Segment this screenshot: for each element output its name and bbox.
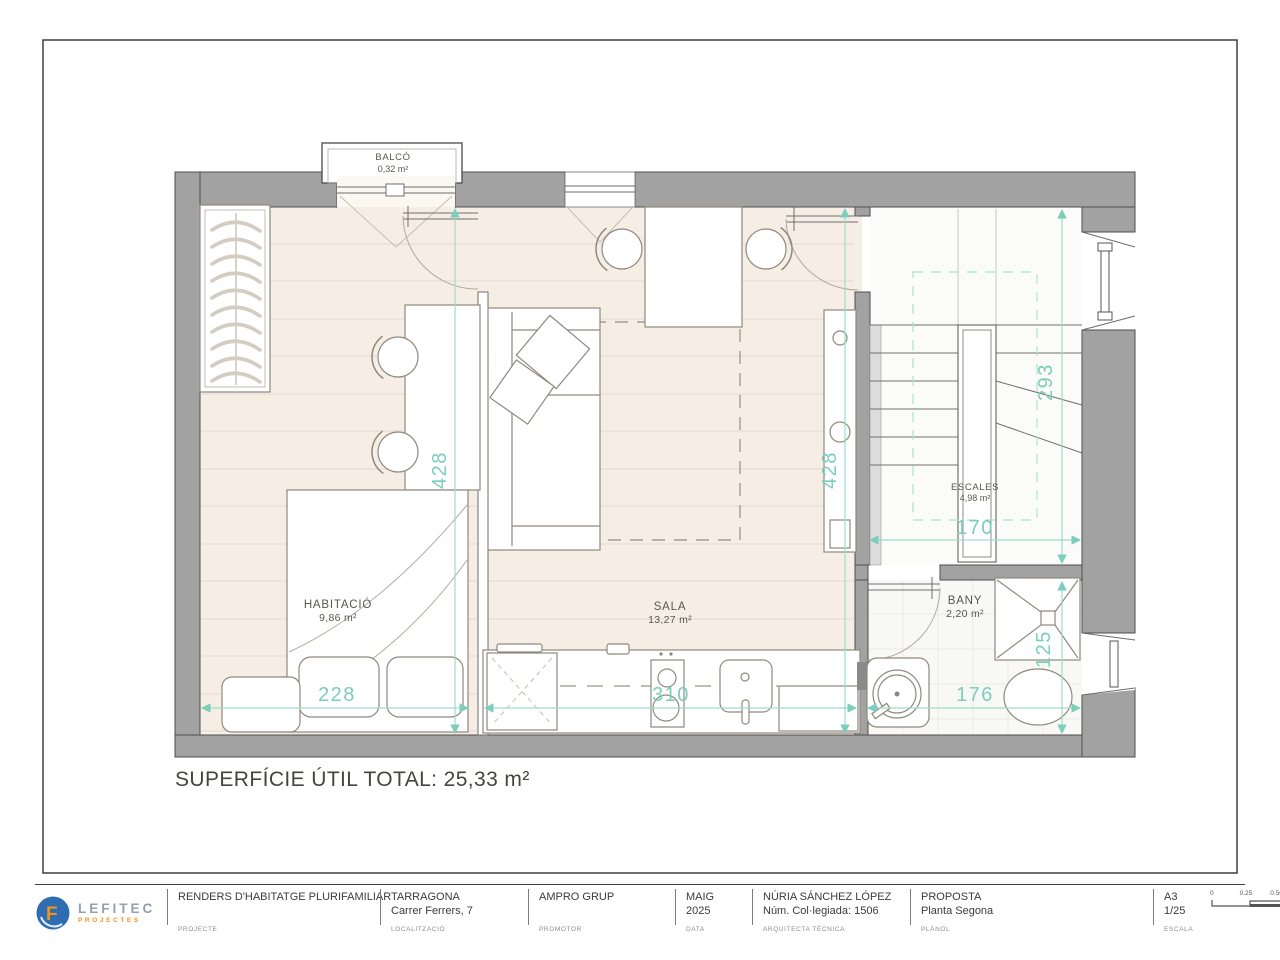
- dim-bed-width: 228: [318, 684, 356, 706]
- washbasin: [867, 658, 929, 727]
- scale-value: 1/25: [1164, 904, 1206, 918]
- paper-size: A3: [1164, 890, 1206, 904]
- location-city: TARRAGONA: [391, 890, 524, 904]
- scale-tick: 0: [1210, 890, 1214, 897]
- dim-sala-height: 428: [819, 451, 841, 489]
- total-area-label: SUPERFÍCIE ÚTIL TOTAL: 25,33 m²: [175, 768, 530, 792]
- architect-number: Núm. Col·legiada: 1506: [763, 904, 906, 918]
- titleblock-cell-date: MAIG 2025 DATA: [676, 889, 752, 937]
- room-area-balco: 0,32 m²: [378, 164, 409, 174]
- window-right-lower: [1082, 633, 1135, 695]
- room-area-habitacio: 9,86 m²: [319, 612, 357, 624]
- scale-tick: 0.50: [1270, 890, 1280, 897]
- logo-text: LEFITEC: [78, 902, 155, 917]
- titleblock-cell-architect: NÚRIA SÁNCHEZ LÓPEZ Núm. Col·legiada: 15…: [753, 889, 910, 937]
- titleblock-cell-scale: A3 1/25 ESCALA: [1154, 889, 1210, 937]
- date-label: DATA: [686, 926, 748, 937]
- dim-escales-height: 293: [1035, 363, 1057, 401]
- drain: [1041, 611, 1055, 625]
- tv-unit: [824, 310, 856, 552]
- promoter-label: PROMOTOR: [539, 926, 671, 937]
- lefitec-logo-icon: F: [35, 895, 71, 931]
- dim-kitchen-width: 310: [652, 684, 690, 706]
- date-year: 2025: [686, 904, 748, 918]
- logo-subtext: PROJECTES: [78, 917, 155, 924]
- architect-label: ARQUITECTA TÈCNICA: [763, 926, 906, 937]
- floor-plan: 428 428 293 170 125 228 310 176 BALCÓ 0,…: [0, 0, 1280, 880]
- room-area-sala: 13,27 m²: [648, 614, 692, 626]
- bed: [287, 490, 468, 732]
- room-label-escales: ESCALES: [951, 482, 999, 493]
- project-title: RENDERS D'HABITATGE PLURIFAMILIAR: [178, 890, 376, 904]
- sofa: [488, 308, 600, 550]
- location-street: Carrer Ferrers, 7: [391, 904, 524, 918]
- heater: [857, 662, 867, 690]
- logo: F LEFITEC PROJECTES: [35, 889, 167, 937]
- location-label: LOCALITZACIÓ: [391, 926, 524, 937]
- titleblock-cell-location: TARRAGONA Carrer Ferrers, 7 LOCALITZACIÓ: [381, 889, 528, 937]
- date-month: MAIG: [686, 890, 748, 904]
- project-label: PROJECTE: [178, 926, 376, 937]
- drawing-sheet: 428 428 293 170 125 228 310 176 BALCÓ 0,…: [0, 0, 1280, 960]
- titleblock-cell-promoter: AMPRO GRUP PROMOTOR: [529, 889, 675, 937]
- dim-habitacio-height: 428: [429, 451, 451, 489]
- room-label-bany: BANY: [948, 595, 983, 607]
- room-label-sala: SALA: [654, 601, 687, 613]
- architect-name: NÚRIA SÁNCHEZ LÓPEZ: [763, 890, 906, 904]
- plan-label: PLÀNOL: [921, 926, 1149, 937]
- titleblock-cell-plan: PROPOSTA Planta Segona PLÀNOL: [911, 889, 1153, 937]
- dim-escales-width: 170: [956, 517, 994, 539]
- scale-bar-graphic: [1210, 897, 1280, 911]
- promoter-name: AMPRO GRUP: [539, 890, 671, 904]
- room-area-escales: 4,98 m²: [960, 493, 991, 503]
- plan-name: Planta Segona: [921, 904, 1149, 918]
- window-right-upper: [1082, 232, 1135, 330]
- scale-tick: 0.25: [1240, 890, 1253, 897]
- room-label-habitacio: HABITACIÓ: [304, 598, 372, 611]
- plan-type: PROPOSTA: [921, 890, 1149, 904]
- room-area-bany: 2,20 m²: [946, 608, 984, 620]
- dim-shower-height: 125: [1033, 630, 1055, 668]
- svg-text:F: F: [46, 904, 58, 925]
- scale-bar: 0 0.25 0.50: [1210, 889, 1280, 937]
- dim-bany-width: 176: [956, 684, 994, 706]
- scale-label: ESCALA: [1164, 926, 1206, 937]
- title-block: F LEFITEC PROJECTES RENDERS D'HABITATGE …: [35, 884, 1245, 937]
- wardrobe: [200, 205, 270, 392]
- bench: [222, 677, 300, 732]
- titleblock-cell-project: RENDERS D'HABITATGE PLURIFAMILIAR PROJEC…: [168, 889, 380, 937]
- room-label-balco: BALCÓ: [375, 152, 410, 163]
